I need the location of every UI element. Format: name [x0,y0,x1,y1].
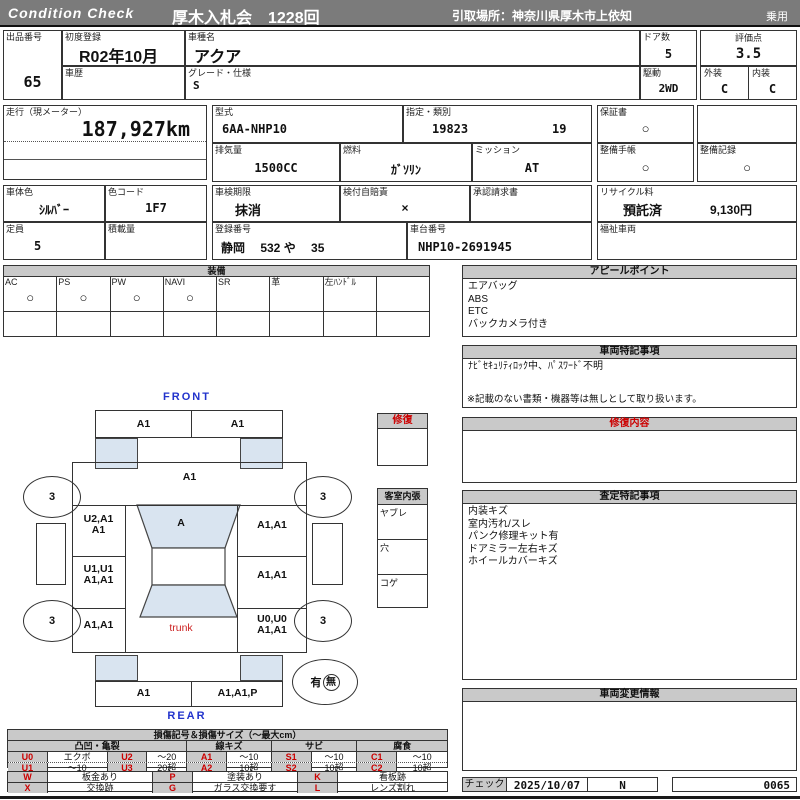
legend-code: K [298,772,338,782]
right-rear-quarter-damage: U0,U0 A1,A1 [237,614,307,636]
rear-window-shape [140,585,237,617]
auction-title: 厚木入札会 1228回 [172,4,320,28]
transmission-cell: ミッション AT [472,143,592,182]
equipment-mark: ○ [164,290,216,305]
legend-desc: ～10 [227,752,272,762]
spare-no-circled: 無 [323,674,340,691]
maintenance-record-mark: ○ [698,160,796,175]
legend-code: W [8,772,48,782]
repair-flag-box: 修復 [377,413,428,466]
legend-code: G [153,783,193,793]
exterior-grade-label: 外装 [704,68,722,78]
interior-grade-value: C [749,82,796,96]
legend-desc: 交換跡 [48,783,153,793]
assessment-notes-title: 査定特記事項 [463,491,796,504]
vehicle-notes-panel: 車両特記事項 ﾅﾋﾞｾｷｭﾘﾃｨﾛｯｸ中、ﾊﾟｽﾜｰﾄﾞ不明 ※記載のない書類・… [462,345,797,408]
marks-row-1: W 板金あり P 塗装あり K 看板跡 [8,772,447,783]
equipment-cell-ac: AC ○ [4,277,57,311]
warranty-mark: ○ [598,121,693,136]
score-cell: 評価点 3.5 [700,30,797,66]
inspection-value: 抹消 [235,200,261,219]
model-name-cell: 車種名 アクア [185,30,640,66]
legend-desc: ～10 [312,752,358,762]
doors-cell: ドア数 5 [640,30,697,66]
legend-group-scratch: 線キズ [187,741,272,751]
vin-cell: 車台番号 NHP10-2691945 [407,222,592,260]
equipment-cell-extra [377,277,429,311]
vin-value: NHP10-2691945 [418,240,512,254]
plate-number-label: 登録番号 [215,224,251,234]
legend-code: S1 [272,752,312,762]
history-cell: 車歴 [62,66,185,100]
legend-group-dent: 凸凹・亀裂 [8,741,187,751]
marks-row-2: X 交換跡 G ガラス交換要す L レンズ割れ [8,783,447,793]
tire-size-value: 3 [320,615,326,627]
insurance-mark: × [341,201,469,215]
equipment-title: 装備 [207,266,225,276]
hood-damage: A1 [72,472,307,483]
left-front-fender-damage: U2,A1 A1 [72,514,125,536]
legend-code: A1 [187,752,227,762]
drive-cell: 駆動 2WD [640,66,697,100]
change-info-body [463,702,796,706]
check-date-cell: 2025/10/07 [506,777,588,792]
legend-desc: 看板跡 [338,772,447,782]
load-label: 積載量 [108,224,135,234]
equipment-cell-sr: SR [217,277,270,311]
warranty-cell: 保証書 ○ [597,105,694,143]
cabin-interior-row-tear: ヤブレ [378,505,427,540]
equipment-cell-ps: PS ○ [57,277,110,311]
doors-label: ドア数 [643,32,670,42]
check-inspector-value: N [588,779,657,792]
spare-tire-indicator: 有 無 [292,659,358,705]
equipment-label: PW [112,277,127,287]
legend-desc: ～20 [147,752,187,762]
capacity-value: 5 [34,239,41,253]
equipment-mark: ○ [4,290,56,305]
interior-grade-label: 内装 [752,68,770,78]
legend-group-corrosion: 腐食 [357,741,447,751]
equipment-cell-lhd: 左ﾊﾝﾄﾞﾙ [324,277,377,311]
front-bumper-right-damage: A1 [191,419,284,430]
change-info-panel: 車両変更情報 [462,688,797,771]
legend-code: L [298,783,338,793]
insurance-label: 検付自賠責 [343,187,388,197]
equipment-row: AC ○ PS ○ PW ○ NAVI ○ SR 革 左ﾊﾝﾄﾞﾙ [3,276,430,312]
change-info-title: 車両変更情報 [463,689,796,702]
legend-desc: レンズ割れ [338,783,447,793]
equipment-label: SR [218,277,231,287]
displacement-label: 排気量 [215,145,242,155]
lot-number-label: 出品番号 [6,32,42,42]
recycle-fee-label: リサイクル料 [600,187,654,197]
class-code-cell: 指定・類別 19823 19 [403,105,592,143]
legend-group-row: 凸凹・亀裂 線キズ サビ 腐食 [8,741,447,752]
taillight-left [95,655,138,681]
warranty-label: 保証書 [600,107,627,117]
check-label: チェック [465,779,505,790]
approval-label: 承認請求書 [473,187,518,197]
cabin-interior-title: 客室内張 [378,489,427,505]
equipment-label: NAVI [165,277,185,287]
equipment-cell-navi: NAVI ○ [164,277,217,311]
color-code-cell: 色コード 1F7 [105,185,207,222]
equipment-label: PS [58,277,70,287]
color-code-label: 色コード [108,187,144,197]
legend-desc: ～10 [397,752,447,762]
lot-number-cell: 出品番号 65 [3,30,62,100]
legend-desc: 塗装あり [193,772,298,782]
transmission-label: ミッション [475,145,520,155]
first-registration-label: 初度登録 [65,32,101,42]
class-code-value-1: 19823 [432,122,468,136]
body-color-value: ｼﾙﾊﾞｰ [4,201,104,218]
mileage-label: 走行（現メーター） [6,107,87,117]
repair-content-panel: 修復内容 [462,417,797,483]
equipment-label: AC [5,277,18,287]
equipment-empty-cell [57,312,110,336]
cabin-interior-box: 客室内張 ヤブレ 穴 コゲ [377,488,428,608]
legend-title: 損傷記号＆損傷サイズ（～最大cm） [8,730,447,740]
legend-desc: エクボ [48,752,108,762]
front-bumper-left-damage: A1 [96,419,191,430]
legend-title-row: 損傷記号＆損傷サイズ（～最大cm） [8,730,447,741]
displacement-value: 1500CC [213,161,339,175]
diagram-rear-label: REAR [112,710,262,722]
displacement-cell: 排気量 1500CC [212,143,340,182]
fuel-label: 燃料 [343,145,361,155]
maintenance-book-mark: ○ [598,160,693,175]
rear-bumper: A1 A1,A1,P [95,681,283,707]
mileage-dotted-divider [4,141,206,142]
marks-legend-table: W 板金あり P 塗装あり K 看板跡 X 交換跡 G ガラス交換要す L レン… [7,771,448,792]
type-code-cell: 型式 6AA-NHP10 [212,105,403,143]
tire-size-value: 3 [49,615,55,627]
repair-content-title: 修復内容 [463,418,796,431]
approval-cell: 承認請求書 [470,185,592,222]
equipment-mark: ○ [111,290,163,305]
rear-bumper-right-damage: A1,A1,P [191,688,284,699]
equipment-empty-cell [270,312,323,336]
equipment-empty-cell [324,312,377,336]
blank-cell [697,105,797,143]
model-name-label: 車種名 [188,32,215,42]
left-door-damage: U1,U1 A1,A1 [72,564,125,586]
vehicle-notes-footnote: ※記載のない書類・機器等は無しとして取り扱います。 [467,391,702,405]
exterior-grade-value: C [701,82,748,96]
vin-label: 車台番号 [410,224,446,234]
equipment-empty-cell [4,312,57,336]
mileage-solid-divider [4,159,206,160]
equipment-empty-cell [164,312,217,336]
check-number-cell: 0065 [672,777,797,792]
grade-cell: グレード・仕様 S [185,66,640,100]
left-row-divider-1 [72,556,125,557]
assessment-notes-panel: 査定特記事項 内装キズ 室内汚れ/スレ パンク修理キット有 ドアミラー左右キズ … [462,490,797,680]
repair-flag-title: 修復 [378,414,427,429]
taillight-right [240,655,283,681]
load-cell: 積載量 [105,222,207,260]
equipment-empty-cell [217,312,270,336]
score-label: 評価点 [701,33,796,43]
legend-desc: 板金あり [48,772,153,782]
equipment-label: 左ﾊﾝﾄﾞﾙ [325,277,357,287]
body-color-label: 車体色 [6,187,33,197]
cabin-interior-row-label: ヤブレ [378,505,427,520]
rear-bumper-left-damage: A1 [96,688,191,699]
side-sill-right [312,523,343,585]
legend-desc: ガラス交換要す [193,783,298,793]
equipment-mark: ○ [57,290,109,305]
page-bottom-edge [0,796,800,799]
welfare-label: 福祉車両 [600,224,636,234]
recycle-fee-value: 9,130円 [710,201,752,218]
maintenance-record-cell: 整備記録 ○ [697,143,797,182]
diagram-front-label: FRONT [112,391,262,403]
windshield-damage: A [125,518,237,529]
check-inspector-cell: N [587,777,658,792]
check-date-value: 2025/10/07 [507,779,587,792]
cabin-interior-row-hole: 穴 [378,540,427,575]
type-code-value: 6AA-NHP10 [222,122,287,136]
drive-value: 2WD [641,82,696,95]
hood-divider [72,505,307,506]
legend-code: X [8,783,48,793]
inspection-cell: 車検期限 抹消 [212,185,340,222]
tire-size-value: 3 [49,491,55,503]
equipment-empty-cell [377,312,429,336]
check-number-value: 0065 [764,779,791,792]
right-row-divider-1 [237,556,307,557]
equipment-cell-leather: 革 [270,277,323,311]
fuel-value: ｶﾞｿﾘﾝ [341,161,471,178]
capacity-label: 定員 [6,224,24,234]
mileage-cell: 走行（現メーター） 187,927km [3,105,207,180]
right-row-divider-2 [237,608,307,609]
left-rear-quarter-damage: A1,A1 [72,620,125,631]
damage-legend-table: 損傷記号＆損傷サイズ（～最大cm） 凸凹・亀裂 線キズ サビ 腐食 U0 エクボ… [7,729,448,768]
model-name-value: アクア [194,43,241,67]
welfare-cell: 福祉車両 [597,222,797,260]
left-row-divider-2 [72,608,125,609]
recycle-fee-cell: リサイクル料 預託済 9,130円 [597,185,797,222]
transmission-value: AT [473,161,591,175]
appeal-points-panel: アピールポイント エアバッグ ABS ETC バックカメラ付き [462,265,797,337]
vehicle-notes-body: ﾅﾋﾞｾｷｭﾘﾃｨﾛｯｸ中、ﾊﾟｽﾜｰﾄﾞ不明 [463,359,796,376]
legend-code: P [153,772,193,782]
legend-code: U2 [108,752,148,762]
equipment-cell-pw: PW ○ [111,277,164,311]
appeal-points-title: アピールポイント [463,266,796,279]
maintenance-book-label: 整備手帳 [600,145,636,155]
fuel-cell: 燃料 ｶﾞｿﾘﾝ [340,143,472,182]
check-label-cell: チェック [462,777,507,792]
type-code-label: 型式 [215,107,233,117]
first-registration-value: R02年10月 [79,43,158,67]
doors-value: 5 [641,47,696,61]
plate-number-value: 静岡 532 や 35 [221,239,324,256]
score-value: 3.5 [701,46,796,62]
front-bumper: A1 A1 [95,410,283,438]
legend-code: C1 [357,752,397,762]
mileage-value: 187,927km [82,117,190,141]
repair-content-body [463,431,796,435]
class-code-value-2: 19 [552,122,566,136]
grade-value: S [193,79,200,92]
first-registration-cell: 初度登録 R02年10月 [62,30,185,66]
color-code-value: 1F7 [106,201,206,215]
pickup-location: 引取場所：神奈川県厚木市上依知 [452,7,632,24]
spare-yes-label: 有 [311,674,322,690]
legend-group-rust: サビ [272,741,358,751]
drive-label: 駆動 [643,68,661,78]
auction-condition-sheet: Condition Check 厚木入札会 1228回 引取場所：神奈川県厚木市… [0,0,800,800]
assessment-notes-body: 内装キズ 室内汚れ/スレ パンク修理キット有 ドアミラー左右キズ ホイールカバー… [463,504,796,571]
body-color-cell: 車体色 ｼﾙﾊﾞｰ [3,185,105,222]
right-door-damage: A1,A1 [237,570,307,581]
side-sill-left [36,523,66,585]
grade-label: グレード・仕様 [188,68,251,78]
vehicle-category: 乗用 [766,8,788,24]
lot-number-value: 65 [4,73,61,91]
cabin-interior-row-label: 穴 [378,540,427,555]
vehicle-notes-title: 車両特記事項 [463,346,796,359]
trunk-label: trunk [125,623,237,634]
legend-code: U0 [8,752,48,762]
insurance-cell: 検付自賠責 × [340,185,470,222]
roof-shape [152,548,225,585]
appeal-points-body: エアバッグ ABS ETC バックカメラ付き [463,279,796,333]
capacity-cell: 定員 5 [3,222,105,260]
recycle-status-value: 預託済 [623,200,662,219]
class-code-label: 指定・類別 [406,107,451,117]
tire-size-value: 3 [320,491,326,503]
inspection-label: 車検期限 [215,187,251,197]
right-front-fender-damage: A1,A1 [237,520,307,531]
maintenance-book-cell: 整備手帳 ○ [597,143,694,182]
equipment-empty-cell [111,312,164,336]
equipment-empty-row [3,311,430,337]
maintenance-record-label: 整備記録 [700,145,736,155]
brand-title: Condition Check [8,5,134,21]
history-label: 車歴 [65,68,83,78]
interior-grade-cell: 内装 C [748,66,797,100]
cabin-interior-row-label: コゲ [378,575,427,590]
cabin-interior-row-burn: コゲ [378,575,427,608]
header-bar: Condition Check 厚木入札会 1228回 引取場所：神奈川県厚木市… [0,0,800,27]
legend-data-row-1: U0 エクボ U2 ～20 A1 ～10 S1 ～10 C1 ～10 [8,752,447,763]
exterior-grade-cell: 外装 C [700,66,749,100]
plate-number-cell: 登録番号 静岡 532 や 35 [212,222,407,260]
equipment-label: 革 [271,277,280,287]
